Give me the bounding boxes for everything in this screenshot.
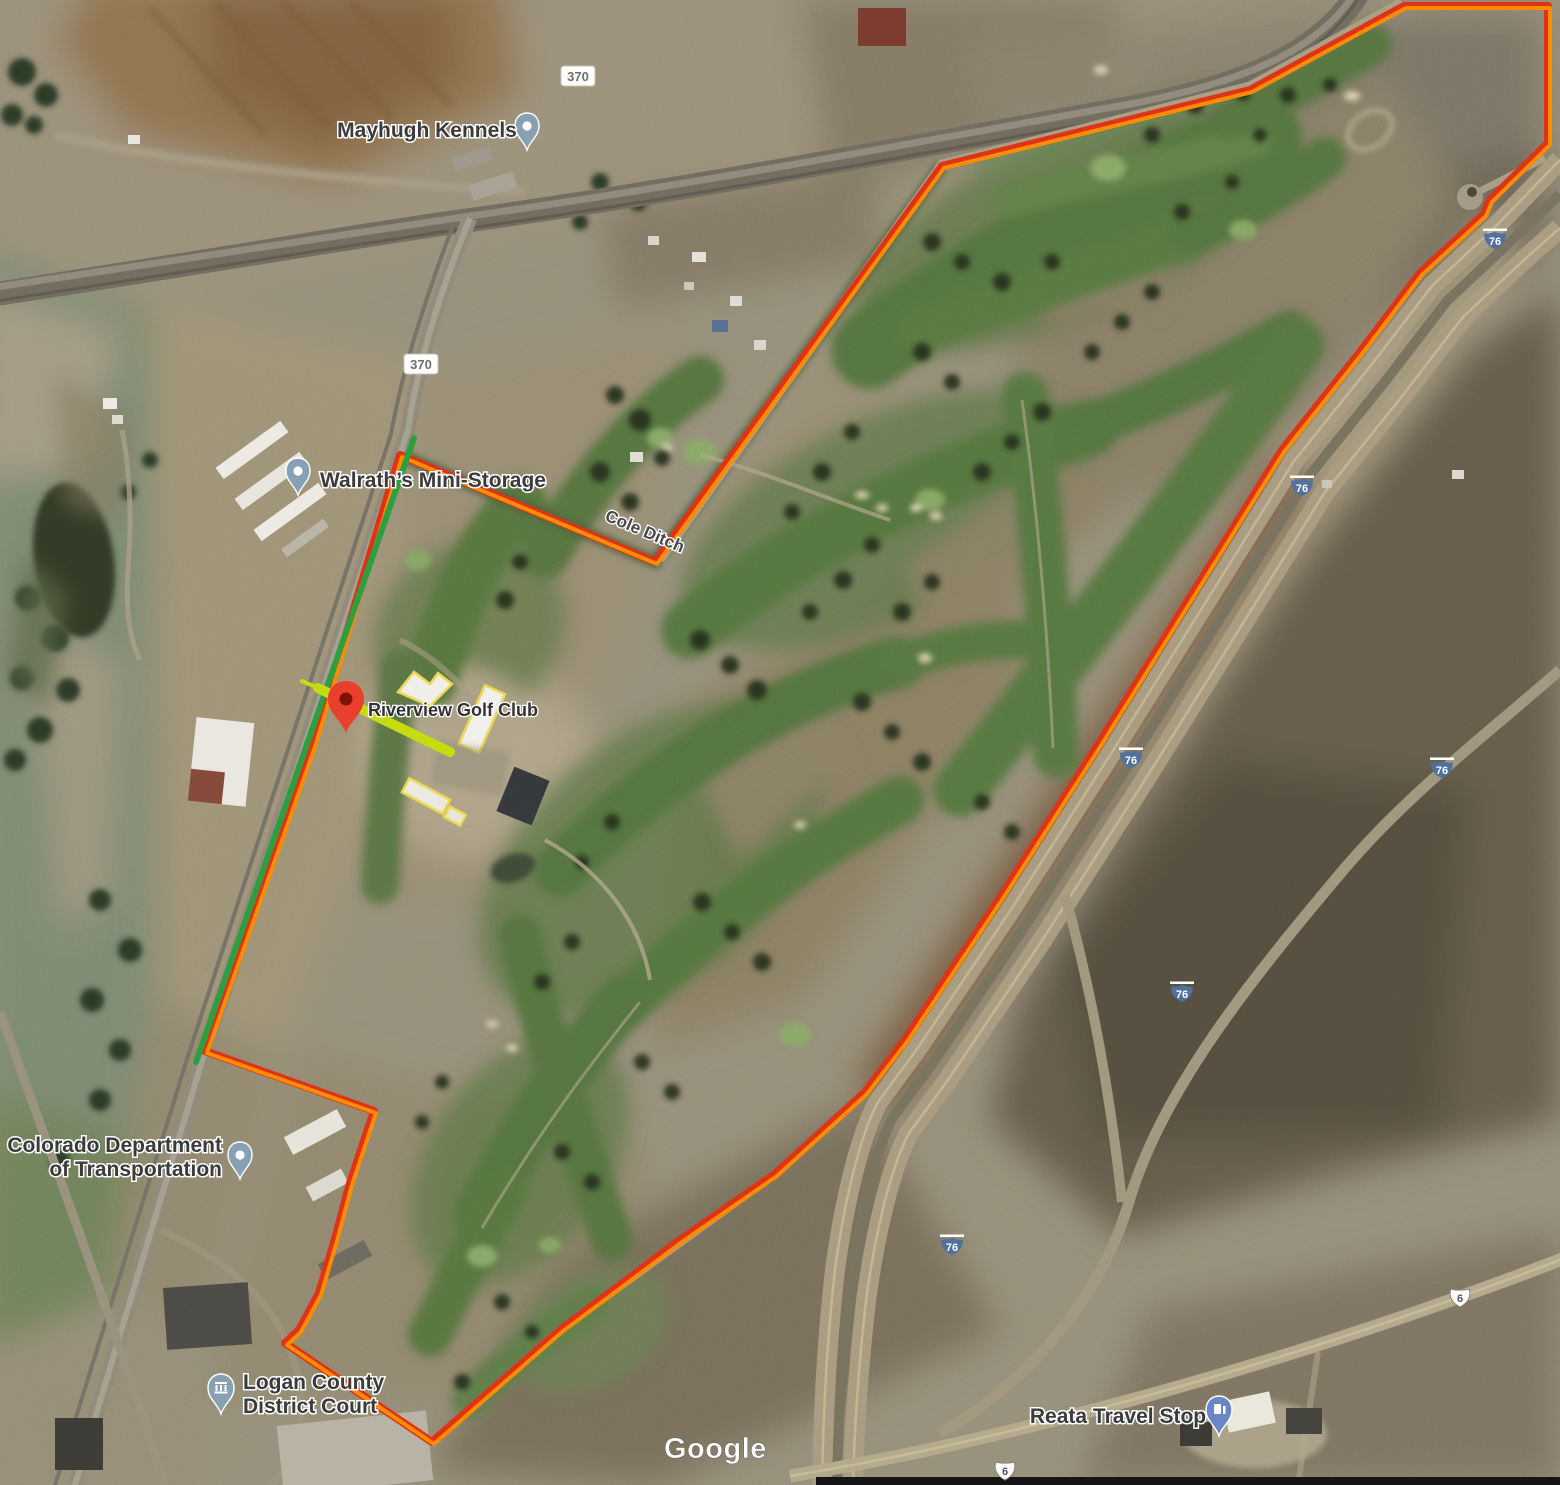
- svg-text:Riverview Golf Club: Riverview Golf Club: [368, 700, 538, 720]
- svg-text:Mayhugh Kennels: Mayhugh Kennels: [337, 119, 517, 142]
- svg-text:76: 76: [946, 1242, 958, 1254]
- svg-text:Reata Travel Stop: Reata Travel Stop: [1030, 1405, 1206, 1428]
- svg-text:Logan County: Logan County: [243, 1371, 384, 1394]
- svg-text:of Transportation: of Transportation: [49, 1158, 222, 1181]
- svg-text:76: 76: [1489, 236, 1501, 248]
- svg-text:Colorado Department: Colorado Department: [7, 1134, 222, 1157]
- svg-text:76: 76: [1125, 755, 1137, 767]
- svg-text:370: 370: [567, 69, 589, 84]
- svg-text:370: 370: [410, 357, 432, 372]
- svg-text:76: 76: [1436, 765, 1448, 777]
- svg-text:6: 6: [1002, 1466, 1008, 1478]
- svg-text:Google: Google: [664, 1433, 767, 1465]
- svg-text:Walrath’s Mini-Storage: Walrath’s Mini-Storage: [320, 469, 546, 492]
- svg-text:District Court: District Court: [243, 1395, 377, 1418]
- svg-text:6: 6: [1457, 1293, 1463, 1305]
- svg-text:76: 76: [1296, 483, 1308, 495]
- svg-text:76: 76: [1176, 989, 1188, 1001]
